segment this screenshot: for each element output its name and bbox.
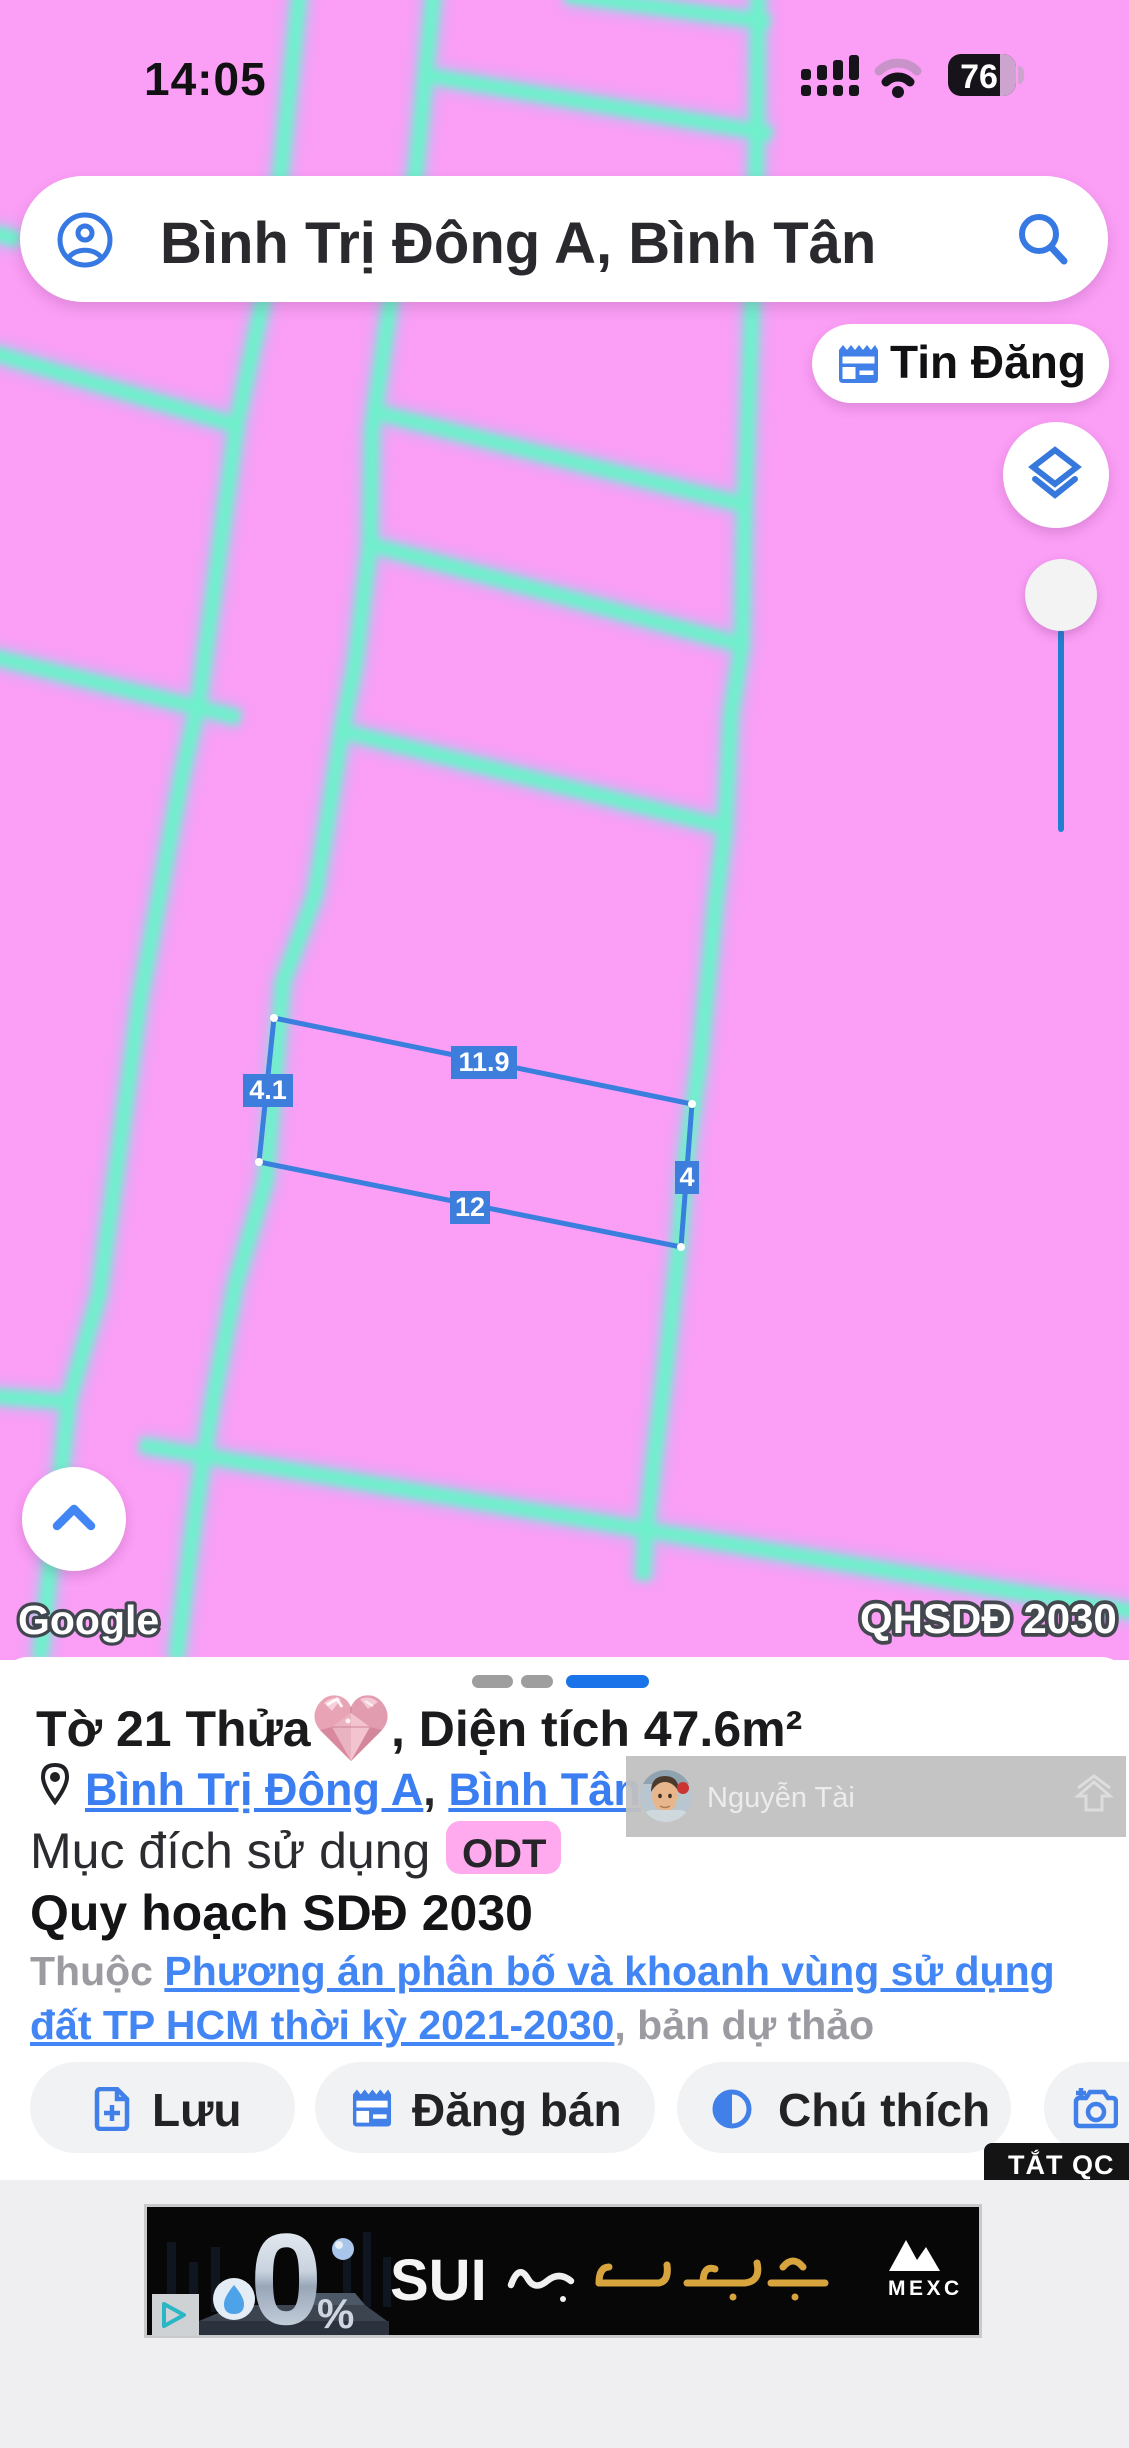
svg-text:11.9: 11.9 — [458, 1047, 509, 1077]
svg-text:4.1: 4.1 — [249, 1075, 287, 1105]
svg-text:%: % — [317, 2290, 354, 2335]
svg-text:76: 76 — [960, 58, 998, 96]
svg-text:12: 12 — [455, 1192, 485, 1222]
svg-text:Google: Google — [18, 1597, 159, 1643]
svg-text:QHSDĐ 2030: QHSDĐ 2030 — [860, 1595, 1117, 1642]
svg-text:0: 0 — [250, 2207, 322, 2335]
svg-text:4: 4 — [679, 1162, 694, 1192]
svg-text:MEXC: MEXC — [888, 2277, 963, 2300]
svg-text:SUI: SUI — [390, 2248, 487, 2313]
